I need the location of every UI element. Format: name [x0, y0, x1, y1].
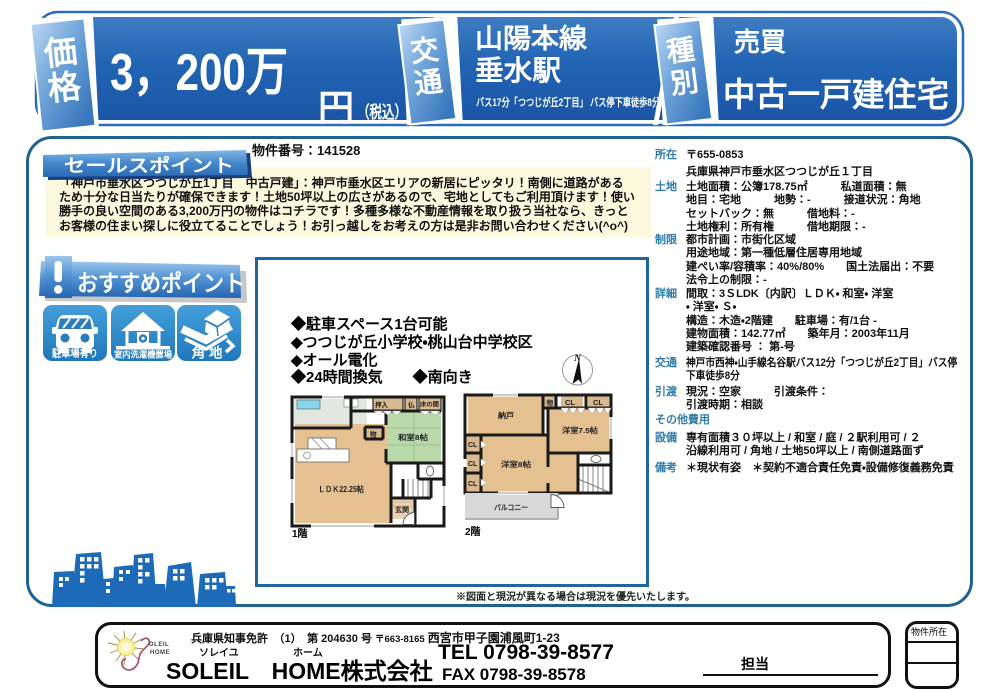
svg-text:山陽本線: 山陽本線 — [475, 24, 588, 54]
svg-text:CL: CL — [468, 442, 478, 449]
svg-text:押入: 押入 — [375, 400, 389, 409]
svg-text:CL: CL — [468, 461, 478, 468]
svg-text:N: N — [573, 354, 582, 364]
svg-text:角 地: 角 地 — [191, 345, 223, 361]
svg-text:おすすめポイント: おすすめポイント — [77, 270, 245, 296]
svg-text:床の間: 床の間 — [420, 401, 439, 409]
svg-text:CL: CL — [565, 398, 575, 407]
svg-text:物: 物 — [370, 430, 377, 439]
svg-text:バルコニー: バルコニー — [494, 503, 528, 512]
svg-text:交: 交 — [409, 34, 441, 68]
svg-text:（税込）: （税込） — [357, 102, 407, 122]
svg-text:駐車場有り: 駐車場有り — [51, 347, 98, 360]
svg-text:垂水駅: 垂水駅 — [475, 55, 561, 86]
svg-text:洋室7.5帖: 洋室7.5帖 — [562, 425, 599, 435]
svg-text:和室8帖: 和室8帖 — [398, 432, 429, 442]
svg-text:バス17分「つつじが丘2丁目」 バス停下車徒歩8分: バス17分「つつじが丘2丁目」 バス停下車徒歩8分 — [476, 95, 661, 109]
svg-text:通: 通 — [413, 65, 446, 99]
svg-text:格: 格 — [46, 67, 84, 107]
svg-text:納戸: 納戸 — [497, 410, 515, 420]
svg-text:円: 円 — [318, 87, 354, 128]
svg-text:室内洗濯機置場: 室内洗濯機置場 — [114, 350, 172, 360]
svg-text:玄関: 玄関 — [395, 505, 409, 514]
svg-text:3，200万: 3，200万 — [110, 44, 288, 102]
svg-text:CL: CL — [593, 398, 603, 407]
svg-text:セールスポイント: セールスポイント — [64, 155, 234, 176]
svg-text:ＬＤＫ22.25帖: ＬＤＫ22.25帖 — [318, 484, 364, 494]
svg-text:CL: CL — [468, 481, 478, 488]
svg-text:OLEIL: OLEIL — [149, 642, 169, 648]
svg-text:仏: 仏 — [407, 400, 415, 409]
svg-text:価: 価 — [41, 32, 79, 72]
svg-text:物: 物 — [547, 398, 554, 407]
svg-text:洋室8帖: 洋室8帖 — [501, 459, 532, 469]
